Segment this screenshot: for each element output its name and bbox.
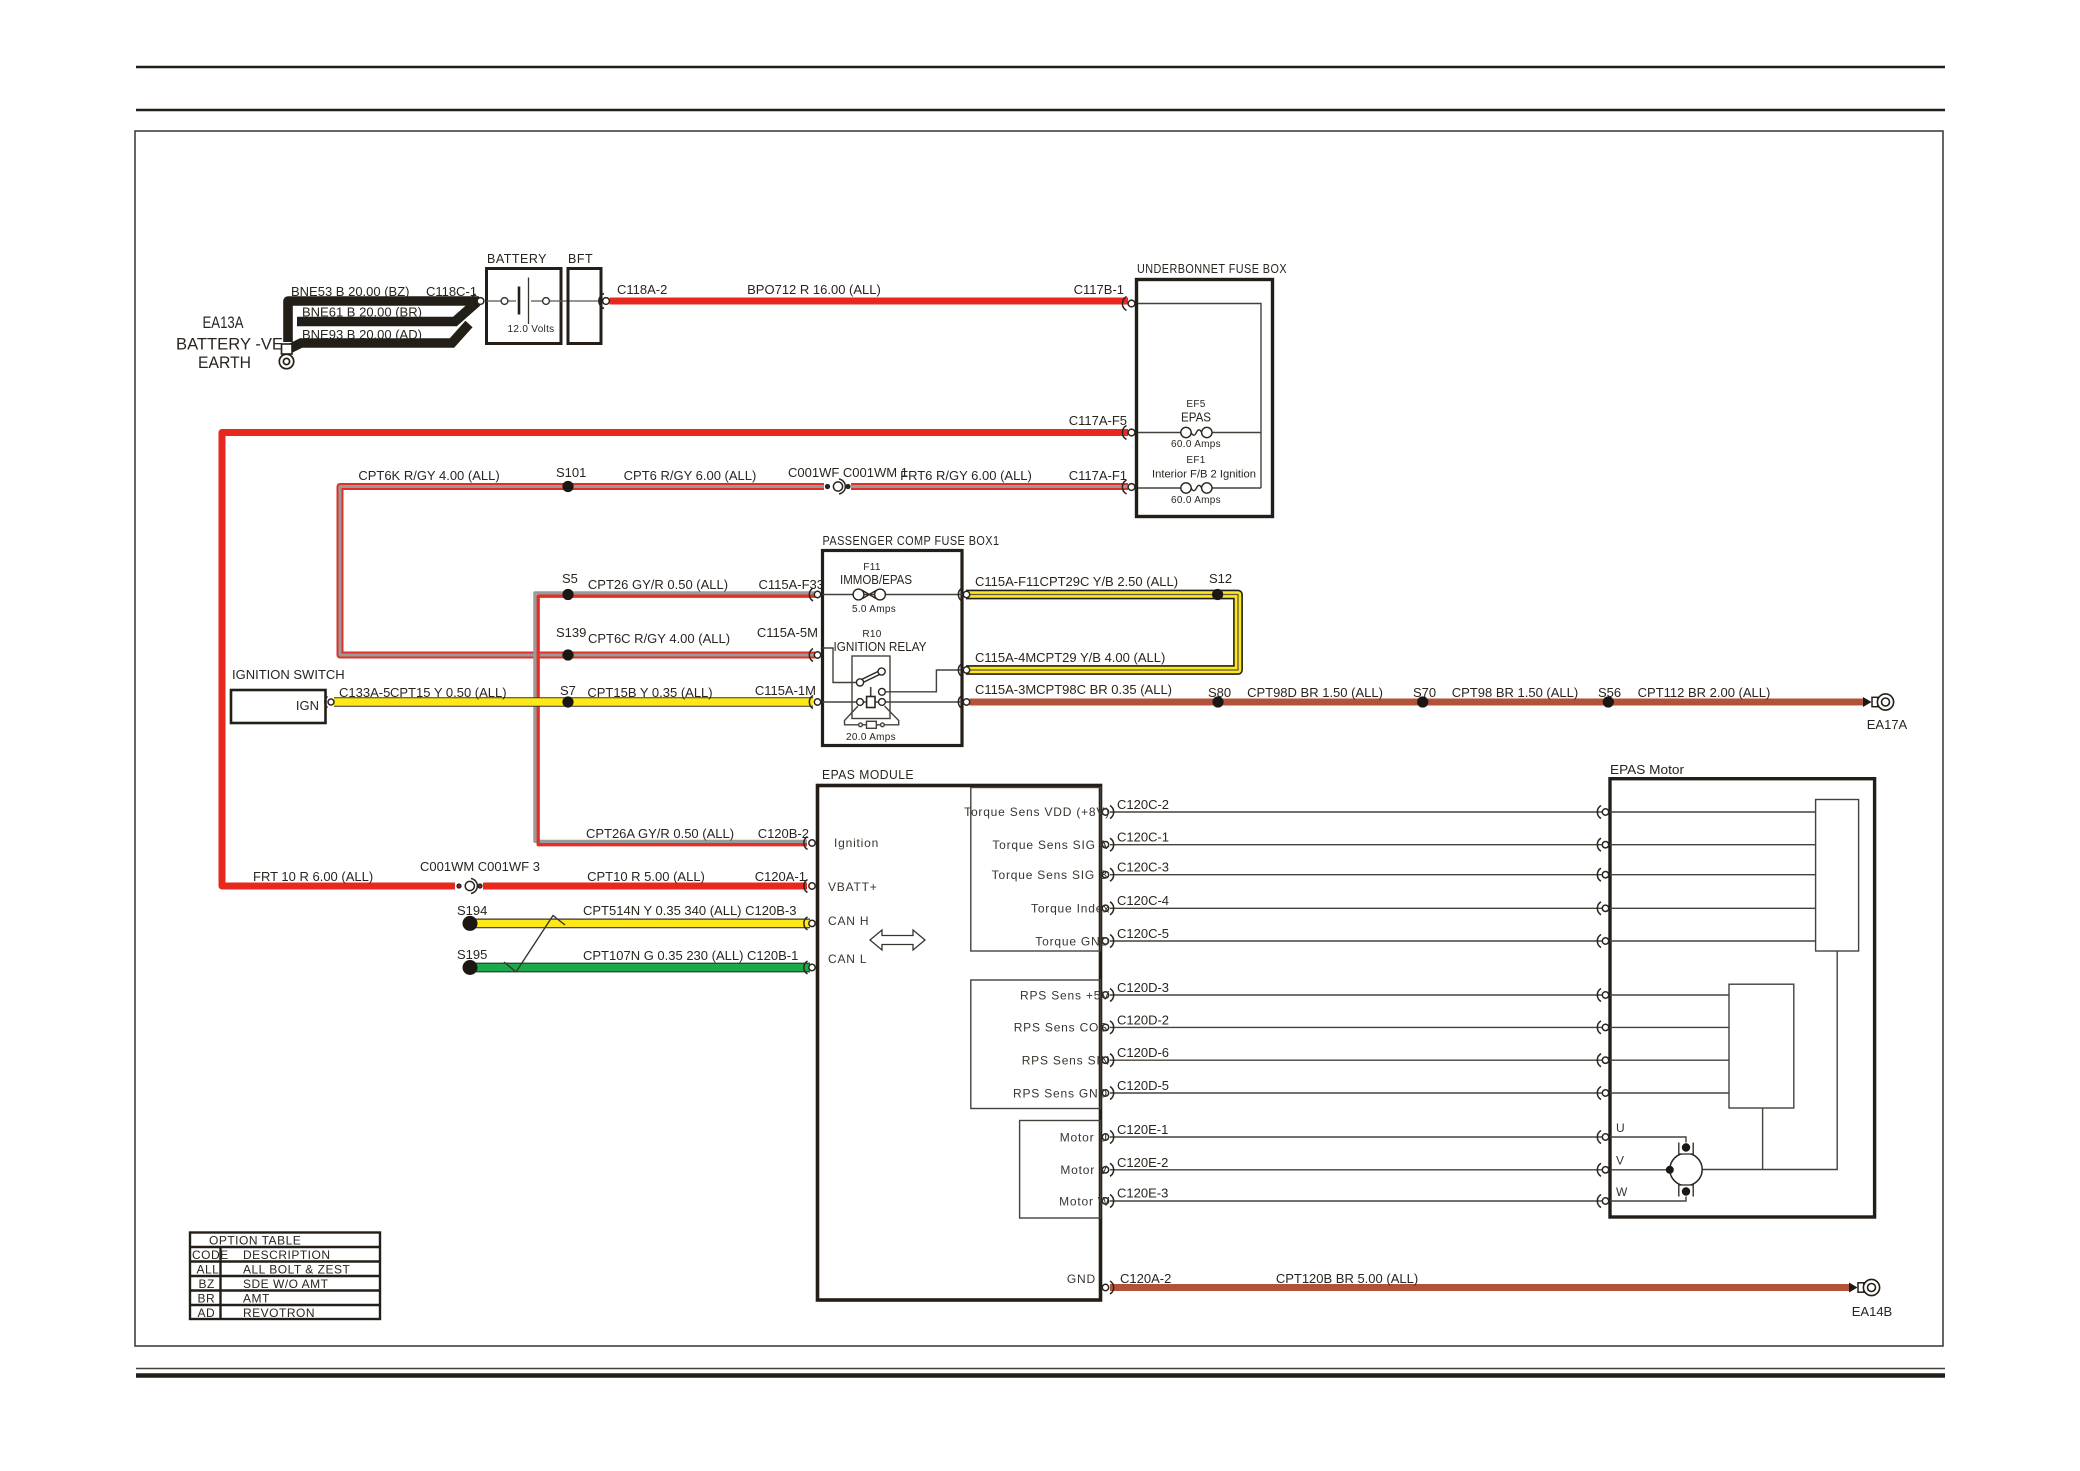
svg-text:FRT6 R/GY 6.00 (ALL): FRT6 R/GY 6.00 (ALL) [900,468,1032,483]
svg-text:Torque Sens SIG B: Torque Sens SIG B [992,868,1108,882]
svg-text:S194: S194 [457,903,487,918]
svg-text:EA17A: EA17A [1867,717,1908,732]
svg-text:C120E-1: C120E-1 [1117,1122,1168,1137]
svg-text:RPS Sens SIN: RPS Sens SIN [1022,1054,1110,1068]
svg-text:W: W [1616,1185,1628,1199]
svg-text:AMT: AMT [243,1292,270,1306]
svg-text:EPAS Motor: EPAS Motor [1610,762,1685,777]
svg-text:CPT112 BR 2.00 (ALL): CPT112 BR 2.00 (ALL) [1638,685,1771,700]
svg-text:C120D-3: C120D-3 [1117,980,1169,995]
svg-text:C117B-1: C117B-1 [1074,282,1124,297]
svg-text:Motor U: Motor U [1060,1131,1108,1145]
svg-text:FRT 10 R 6.00 (ALL): FRT 10 R 6.00 (ALL) [253,869,373,884]
svg-text:S7: S7 [560,683,576,698]
svg-text:V: V [1616,1154,1625,1168]
svg-text:VBATT+: VBATT+ [828,880,878,894]
svg-text:C120D-6: C120D-6 [1117,1045,1169,1060]
svg-text:C120C-2: C120C-2 [1117,797,1169,812]
svg-text:S195: S195 [457,947,487,962]
svg-text:C120E-3: C120E-3 [1117,1186,1168,1201]
svg-text:Torque Sens SIG A: Torque Sens SIG A [992,838,1108,852]
svg-text:DESCRIPTION: DESCRIPTION [243,1248,331,1262]
svg-text:UNDERBONNET FUSE BOX: UNDERBONNET FUSE BOX [1137,262,1287,276]
svg-text:C115A-F11CPT29C Y/B 2.50 (ALL): C115A-F11CPT29C Y/B 2.50 (ALL) [975,574,1178,589]
svg-text:C120B-2: C120B-2 [758,826,809,841]
svg-text:CPT6C R/GY 4.00 (ALL): CPT6C R/GY 4.00 (ALL) [588,631,730,646]
svg-text:CPT6K R/GY 4.00 (ALL): CPT6K R/GY 4.00 (ALL) [358,468,499,483]
svg-text:CPT98 BR 1.50 (ALL): CPT98 BR 1.50 (ALL) [1452,685,1578,700]
svg-text:C117A-F5: C117A-F5 [1069,413,1127,428]
svg-text:EF1: EF1 [1186,455,1205,466]
svg-text:EPAS MODULE: EPAS MODULE [822,768,914,782]
svg-text:CPT10 R 5.00 (ALL): CPT10 R 5.00 (ALL) [587,869,705,884]
svg-text:C120A-2: C120A-2 [1120,1271,1171,1286]
svg-text:C120C-1: C120C-1 [1117,830,1169,845]
svg-text:BNE93 B 20.00 (AD): BNE93 B 20.00 (AD) [302,327,422,342]
svg-text:C118A-2: C118A-2 [617,282,667,297]
svg-text:RPS Sens +5V: RPS Sens +5V [1020,989,1110,1003]
svg-text:CPT26 GY/R 0.50 (ALL): CPT26 GY/R 0.50 (ALL) [588,577,728,592]
svg-text:RPS Sens GND: RPS Sens GND [1013,1087,1108,1101]
svg-text:S12: S12 [1209,571,1232,586]
svg-text:C117A-F1: C117A-F1 [1069,468,1127,483]
svg-text:S139: S139 [556,625,586,640]
svg-text:C120C-5: C120C-5 [1117,926,1169,941]
svg-text:CPT107N G 0.35 230 (ALL) C120: CPT107N G 0.35 230 (ALL) C120B-1 [583,948,798,963]
svg-text:C133A-5: C133A-5 [339,685,390,700]
svg-text:S70: S70 [1413,685,1436,700]
svg-text:CPT15 Y 0.50 (ALL): CPT15 Y 0.50 (ALL) [390,685,507,700]
svg-text:12.0 Volts: 12.0 Volts [508,324,555,335]
svg-text:60.0 Amps: 60.0 Amps [1171,495,1221,506]
svg-text:S101: S101 [556,465,586,480]
svg-text:BR: BR [198,1292,216,1306]
svg-text:SDE W/O AMT: SDE W/O AMT [243,1277,329,1291]
svg-text:Motor W: Motor W [1059,1195,1110,1209]
svg-text:CPT6 R/GY 6.00 (ALL): CPT6 R/GY 6.00 (ALL) [624,468,757,483]
svg-text:Ignition: Ignition [834,836,879,850]
svg-text:Torque Sens VDD (+8V): Torque Sens VDD (+8V) [964,805,1110,819]
svg-text:C001WF C001WM 1: C001WF C001WM 1 [788,465,908,480]
svg-text:20.0 Amps: 20.0 Amps [846,732,896,743]
svg-text:C115A-F33: C115A-F33 [758,577,824,592]
svg-text:C115A-1M: C115A-1M [755,683,816,698]
svg-text:C001WM C001WF 3: C001WM C001WF 3 [420,859,540,874]
svg-text:U: U [1616,1121,1625,1135]
svg-text:EA14B: EA14B [1852,1304,1892,1319]
svg-text:BNE61 B 20.00 (BR): BNE61 B 20.00 (BR) [302,305,422,320]
svg-text:BFT: BFT [568,252,593,266]
svg-text:ALL: ALL [197,1263,220,1277]
svg-text:C120D-5: C120D-5 [1117,1078,1169,1093]
svg-text:60.0 Amps: 60.0 Amps [1171,439,1221,450]
svg-text:BATTERY: BATTERY [487,252,547,266]
svg-text:CPT26A GY/R 0.50 (ALL): CPT26A GY/R 0.50 (ALL) [586,826,734,841]
svg-text:CPT120B BR 5.00 (ALL): CPT120B BR 5.00 (ALL) [1276,1271,1418,1286]
svg-text:RPS Sens COS: RPS Sens COS [1014,1021,1108,1035]
svg-text:EF5: EF5 [1186,399,1205,410]
svg-text:GND: GND [1067,1272,1096,1286]
svg-text:Interior F/B 2 Ignition: Interior F/B 2 Ignition [1152,469,1256,481]
svg-text:EARTH: EARTH [198,353,251,372]
svg-text:ALL BOLT & ZEST: ALL BOLT & ZEST [243,1263,350,1277]
svg-text:5.0 Amps: 5.0 Amps [852,604,896,615]
svg-text:S5: S5 [562,571,578,586]
svg-text:C115A-3MCPT98C BR 0.35 (ALL): C115A-3MCPT98C BR 0.35 (ALL) [975,682,1172,697]
svg-text:IMMOB/EPAS: IMMOB/EPAS [840,572,912,587]
svg-text:Torque GND: Torque GND [1035,935,1110,949]
svg-text:CPT514N Y 0.35 340 (ALL) C120B: CPT514N Y 0.35 340 (ALL) C120B-3 [583,903,796,918]
svg-text:CPT15B Y 0.35 (ALL): CPT15B Y 0.35 (ALL) [587,685,712,700]
svg-text:IGNITION SWITCH: IGNITION SWITCH [232,667,345,682]
svg-text:BATTERY -VE: BATTERY -VE [176,335,283,354]
svg-text:CODE: CODE [192,1248,229,1262]
svg-text:Motor V: Motor V [1060,1163,1108,1177]
svg-text:C115A-5M: C115A-5M [757,625,818,640]
svg-text:EA13A: EA13A [203,313,245,332]
svg-text:Torque Index: Torque Index [1031,902,1110,916]
svg-text:BPO712 R 16.00 (ALL): BPO712 R 16.00 (ALL) [747,282,881,297]
svg-text:PASSENGER COMP FUSE BOX1: PASSENGER COMP FUSE BOX1 [823,534,1000,548]
svg-text:BNE53 B 20.00 (BZ): BNE53 B 20.00 (BZ) [291,284,410,299]
svg-text:AD: AD [198,1306,216,1320]
svg-text:IGNITION RELAY: IGNITION RELAY [834,639,927,654]
svg-text:C120E-2: C120E-2 [1117,1155,1168,1170]
svg-text:C120C-4: C120C-4 [1117,893,1169,908]
svg-text:OPTION TABLE: OPTION TABLE [209,1234,301,1248]
svg-text:EPAS: EPAS [1181,410,1211,425]
svg-text:CAN H: CAN H [828,914,869,928]
svg-text:REVOTRON: REVOTRON [243,1306,315,1320]
svg-text:S80: S80 [1208,685,1231,700]
svg-text:C115A-4MCPT29 Y/B 4.00 (ALL): C115A-4MCPT29 Y/B 4.00 (ALL) [975,650,1165,665]
svg-text:C120C-3: C120C-3 [1117,860,1169,875]
svg-text:CAN L: CAN L [828,952,867,966]
svg-text:C120A-1: C120A-1 [755,869,806,884]
svg-text:BZ: BZ [199,1277,215,1291]
svg-text:C118C-1: C118C-1 [426,284,477,299]
svg-text:C120D-2: C120D-2 [1117,1013,1169,1028]
svg-text:IGN: IGN [296,698,319,713]
svg-text:S56: S56 [1598,685,1621,700]
svg-text:CPT98D BR 1.50 (ALL): CPT98D BR 1.50 (ALL) [1247,685,1383,700]
